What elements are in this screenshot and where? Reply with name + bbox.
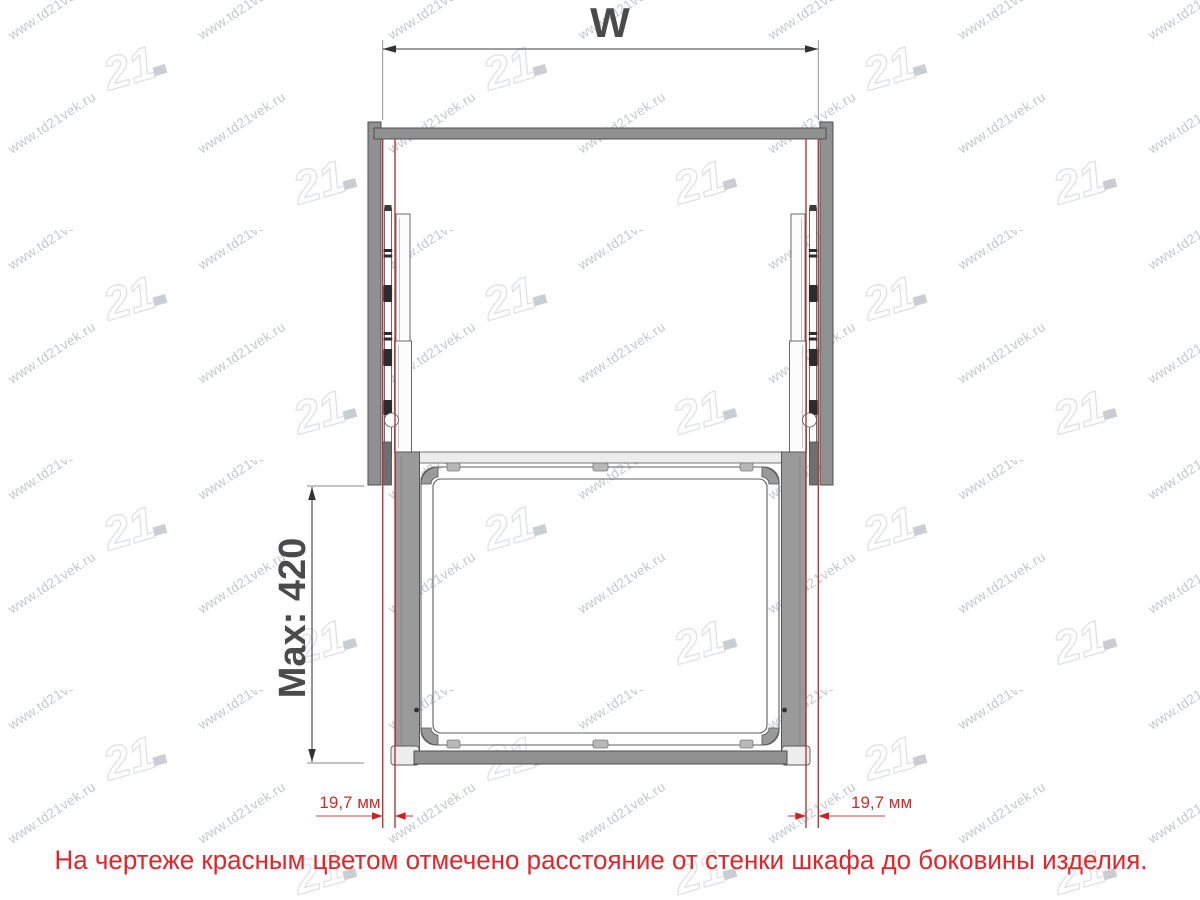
frame-tab [593,463,608,471]
pullout-top-platform [395,452,806,463]
height-dimension-label: Max: 420 [272,538,314,699]
frame-tab [740,740,753,748]
frame-tab [593,740,608,748]
right-slide-rail [790,205,819,485]
width-dimension-label: W [590,0,630,46]
frame-tab [447,463,460,471]
cabinet-right-wall [820,122,833,485]
cabinet-pullout-drawing: 21 [0,0,1200,900]
gap-label-right: 19,7 мм [851,793,912,812]
red-note-text: На чертеже красным цветом отмечено расст… [55,845,1148,875]
frame-tab [447,740,460,748]
frame-tab [740,463,753,471]
gap-label-left: 19,7 мм [319,793,380,812]
technical-drawing-page: 21 [0,0,1200,900]
cabinet-top-panel [374,128,826,139]
left-slide-rail [383,205,412,485]
bottom-front-bar [414,751,787,764]
cabinet-left-wall [368,122,381,485]
